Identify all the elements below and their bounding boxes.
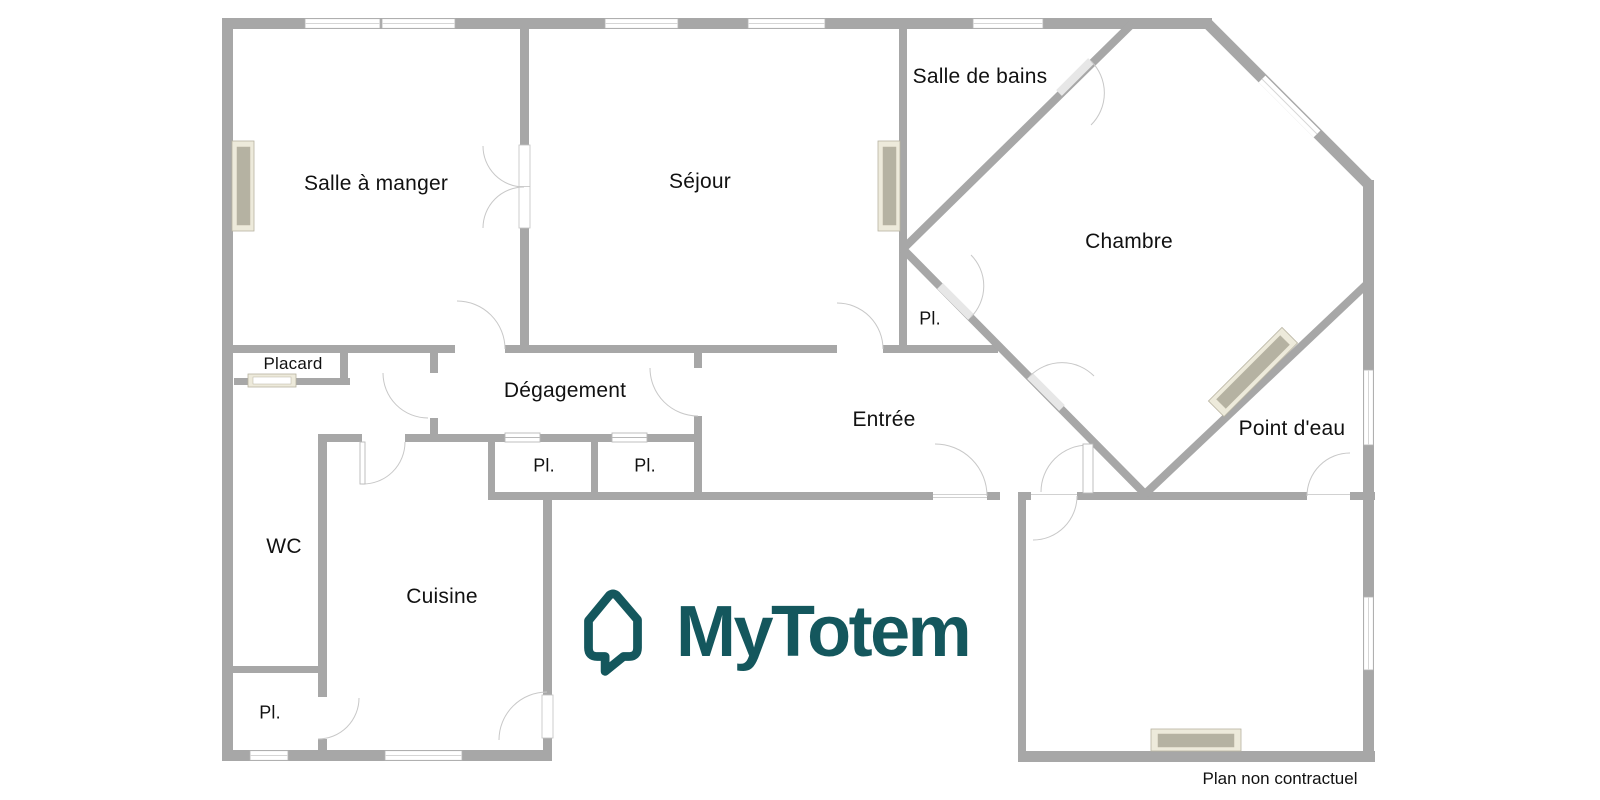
room-label-placard: Placard xyxy=(263,354,322,374)
room-label-sejour: Séjour xyxy=(669,170,731,194)
room-label-cuisine: Cuisine xyxy=(406,585,477,609)
room-label-chambre: Chambre xyxy=(1085,230,1173,254)
mytotem-logo-text: MyTotem xyxy=(676,600,969,665)
radiator-bureau xyxy=(1151,729,1241,751)
room-label-salle-de-bains: Salle de bains xyxy=(913,65,1048,89)
room-label-placard-wc: Pl. xyxy=(259,703,281,724)
mytotem-logo: MyTotem xyxy=(578,586,969,678)
room-label-placard-2: Pl. xyxy=(634,456,656,477)
room-label-placard-1: Pl. xyxy=(533,456,555,477)
room-label-wc: WC xyxy=(266,535,301,559)
room-label-placard-chambre: Pl. xyxy=(919,309,941,330)
room-label-degagement: Dégagement xyxy=(504,379,626,403)
radiator-sejour xyxy=(878,141,900,231)
radiator-chambre xyxy=(1208,327,1297,416)
radiator-salle-a-manger xyxy=(232,141,254,231)
room-label-salle-a-manger: Salle à manger xyxy=(304,172,448,196)
mytotem-logo-icon xyxy=(578,586,648,678)
plan-disclaimer: Plan non contractuel xyxy=(1203,769,1358,789)
floor-plan xyxy=(0,0,1600,800)
room-label-point-d-eau: Point d'eau xyxy=(1239,417,1346,441)
room-label-entree: Entrée xyxy=(852,408,915,432)
radiator-placard xyxy=(248,374,296,387)
floor-plan-page: Salle à manger Séjour Salle de bains Cha… xyxy=(0,0,1600,800)
chamfer-window xyxy=(1262,79,1317,134)
